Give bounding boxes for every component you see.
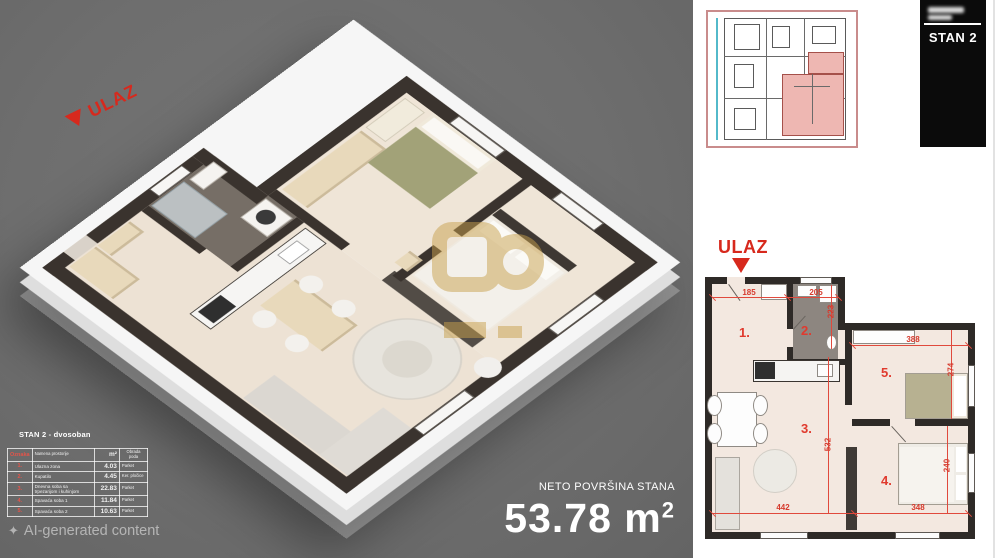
table-row: 5. Spavaća soba 2 10.63 Parket	[8, 506, 148, 516]
room-number-3: 3.	[801, 421, 812, 436]
page-edge-divider	[993, 0, 995, 558]
room-number-1: 1.	[739, 325, 750, 340]
legend-header-row: Oznaka Namena prostorije m² Obrada poda	[8, 449, 148, 462]
floorplan-page: ULAZ STAN 2 - dvosoban Oznaka Namena pro…	[0, 0, 1000, 558]
keyplan-section-line	[716, 18, 718, 140]
keyplan-highlighted-unit	[808, 52, 844, 74]
dim-bed-depth: 240	[943, 452, 952, 480]
wall	[852, 419, 890, 426]
sparkle-icon: ✦	[8, 523, 19, 539]
dim-living-depth: 532	[824, 431, 833, 459]
dim-room5-width: 388	[899, 335, 927, 344]
ai-watermark-text: AI-generated content	[24, 523, 159, 539]
bed-small-blanket	[906, 374, 952, 418]
bed-large-pillow	[956, 475, 966, 500]
table-row: 4. Spavaća soba 1 11.84 Parket	[8, 496, 148, 506]
window	[968, 365, 975, 407]
chair	[707, 395, 722, 416]
chair	[753, 395, 768, 416]
unit-badge-box: STAN 2	[920, 0, 986, 147]
dimension-line	[712, 513, 968, 514]
dim-bath-width: 205	[802, 288, 830, 297]
dining-table	[717, 392, 757, 447]
window	[968, 453, 975, 493]
table-row: 3. Dnevna soba sa trpezarijom i kuhinjom…	[8, 482, 148, 496]
round-rug	[753, 449, 797, 493]
wall	[968, 323, 975, 539]
building-key-plan	[706, 10, 858, 148]
net-area-value: 53.78 m2	[330, 495, 675, 542]
table-row: 2. Kupatilo 4.45 Ker. pločice	[8, 472, 148, 482]
chair	[707, 423, 722, 444]
dim-hall-width: 185	[735, 288, 763, 297]
ai-watermark: ✦ AI-generated content	[8, 523, 159, 539]
cooktop	[755, 362, 775, 379]
sofa	[715, 457, 740, 530]
room-number-2: 2.	[801, 323, 812, 338]
keyplan-highlighted-unit	[782, 74, 844, 136]
redacted-logo	[928, 7, 964, 13]
redacted-logo	[928, 15, 952, 20]
gold-logo-watermark	[432, 214, 582, 349]
wall	[915, 419, 968, 426]
window	[760, 532, 808, 539]
legend-title: STAN 2 - dvosoban	[19, 430, 91, 439]
window	[800, 277, 832, 284]
kitchen-sink	[817, 364, 833, 377]
dim-room4-width: 348	[904, 503, 932, 512]
badge-divider	[924, 23, 981, 25]
room-legend-table: Oznaka Namena prostorije m² Obrada poda …	[7, 448, 148, 517]
dim-room5-depth: 274	[947, 356, 956, 384]
wall	[787, 284, 793, 329]
entrance-label-2d: ULAZ	[718, 237, 768, 258]
room-number-4: 4.	[881, 473, 892, 488]
wall	[838, 323, 975, 330]
bed-large-pillow	[956, 447, 966, 472]
render-3d-panel: ULAZ STAN 2 - dvosoban Oznaka Namena pro…	[0, 0, 693, 558]
table-row: 1. Ulazna zona 4.03 Parket	[8, 461, 148, 471]
room-number-5: 5.	[881, 365, 892, 380]
unit-badge-label: STAN 2	[920, 30, 986, 45]
entrance-arrow-icon	[732, 258, 750, 273]
bed-small-pillow	[954, 376, 966, 416]
dim-living-width: 442	[769, 503, 797, 512]
tv-cabinet	[846, 447, 857, 530]
dimension-line	[712, 297, 838, 298]
window	[895, 532, 940, 539]
floor-plan-2d: 185 205 223 388 274 532 240 442 348 1. 2…	[705, 277, 977, 545]
dim-hall-depth: 223	[827, 298, 836, 326]
chair	[753, 423, 768, 444]
net-area-caption: NETO POVRŠINA STANA	[380, 481, 675, 493]
plan-2d-panel: STAN 2 ULAZ	[693, 0, 1000, 558]
